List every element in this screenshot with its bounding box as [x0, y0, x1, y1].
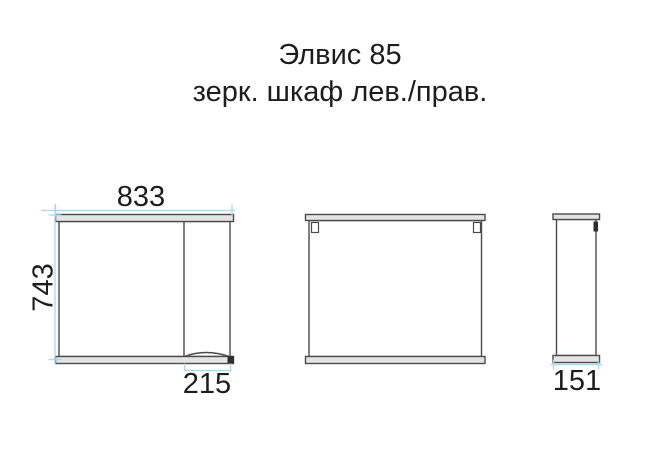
front-cabinet-body — [59, 222, 230, 357]
front-height-dimension: 743 — [28, 204, 62, 365]
drawing-page: Элвис 85 зерк. шкаф лев./прав. 833 743 — [0, 0, 646, 457]
back-bottom-trim — [306, 357, 486, 364]
back-top-trim — [306, 215, 486, 221]
door-section-dimension: 215 — [183, 364, 231, 401]
back-hanging-bracket-right — [474, 223, 481, 233]
front-corner-detail — [228, 356, 235, 363]
depth-dimension-value: 151 — [553, 365, 601, 397]
front-bottom-trim — [56, 357, 234, 364]
title-block: Элвис 85 зерк. шкаф лев./прав. — [193, 39, 488, 108]
section-dimension-value: 215 — [183, 368, 231, 400]
side-bottom-cap — [553, 356, 600, 363]
side-bracket-mark — [594, 222, 599, 232]
front-top-trim — [56, 215, 234, 222]
front-width-dimension: 833 — [41, 181, 235, 217]
back-hanging-bracket-left — [312, 223, 319, 233]
product-title: Элвис 85 — [278, 39, 401, 71]
back-cabinet-body — [309, 221, 482, 357]
front-view — [56, 215, 235, 364]
back-view — [306, 215, 486, 364]
side-depth-dimension: 151 — [551, 360, 603, 398]
product-subtitle: зерк. шкаф лев./прав. — [193, 76, 488, 108]
side-cabinet-body — [557, 220, 597, 356]
side-view — [553, 214, 600, 363]
side-top-cap — [553, 214, 600, 220]
technical-drawing: Элвис 85 зерк. шкаф лев./прав. 833 743 — [0, 0, 646, 457]
width-dimension-value: 833 — [117, 181, 165, 213]
height-dimension-value: 743 — [28, 263, 60, 311]
